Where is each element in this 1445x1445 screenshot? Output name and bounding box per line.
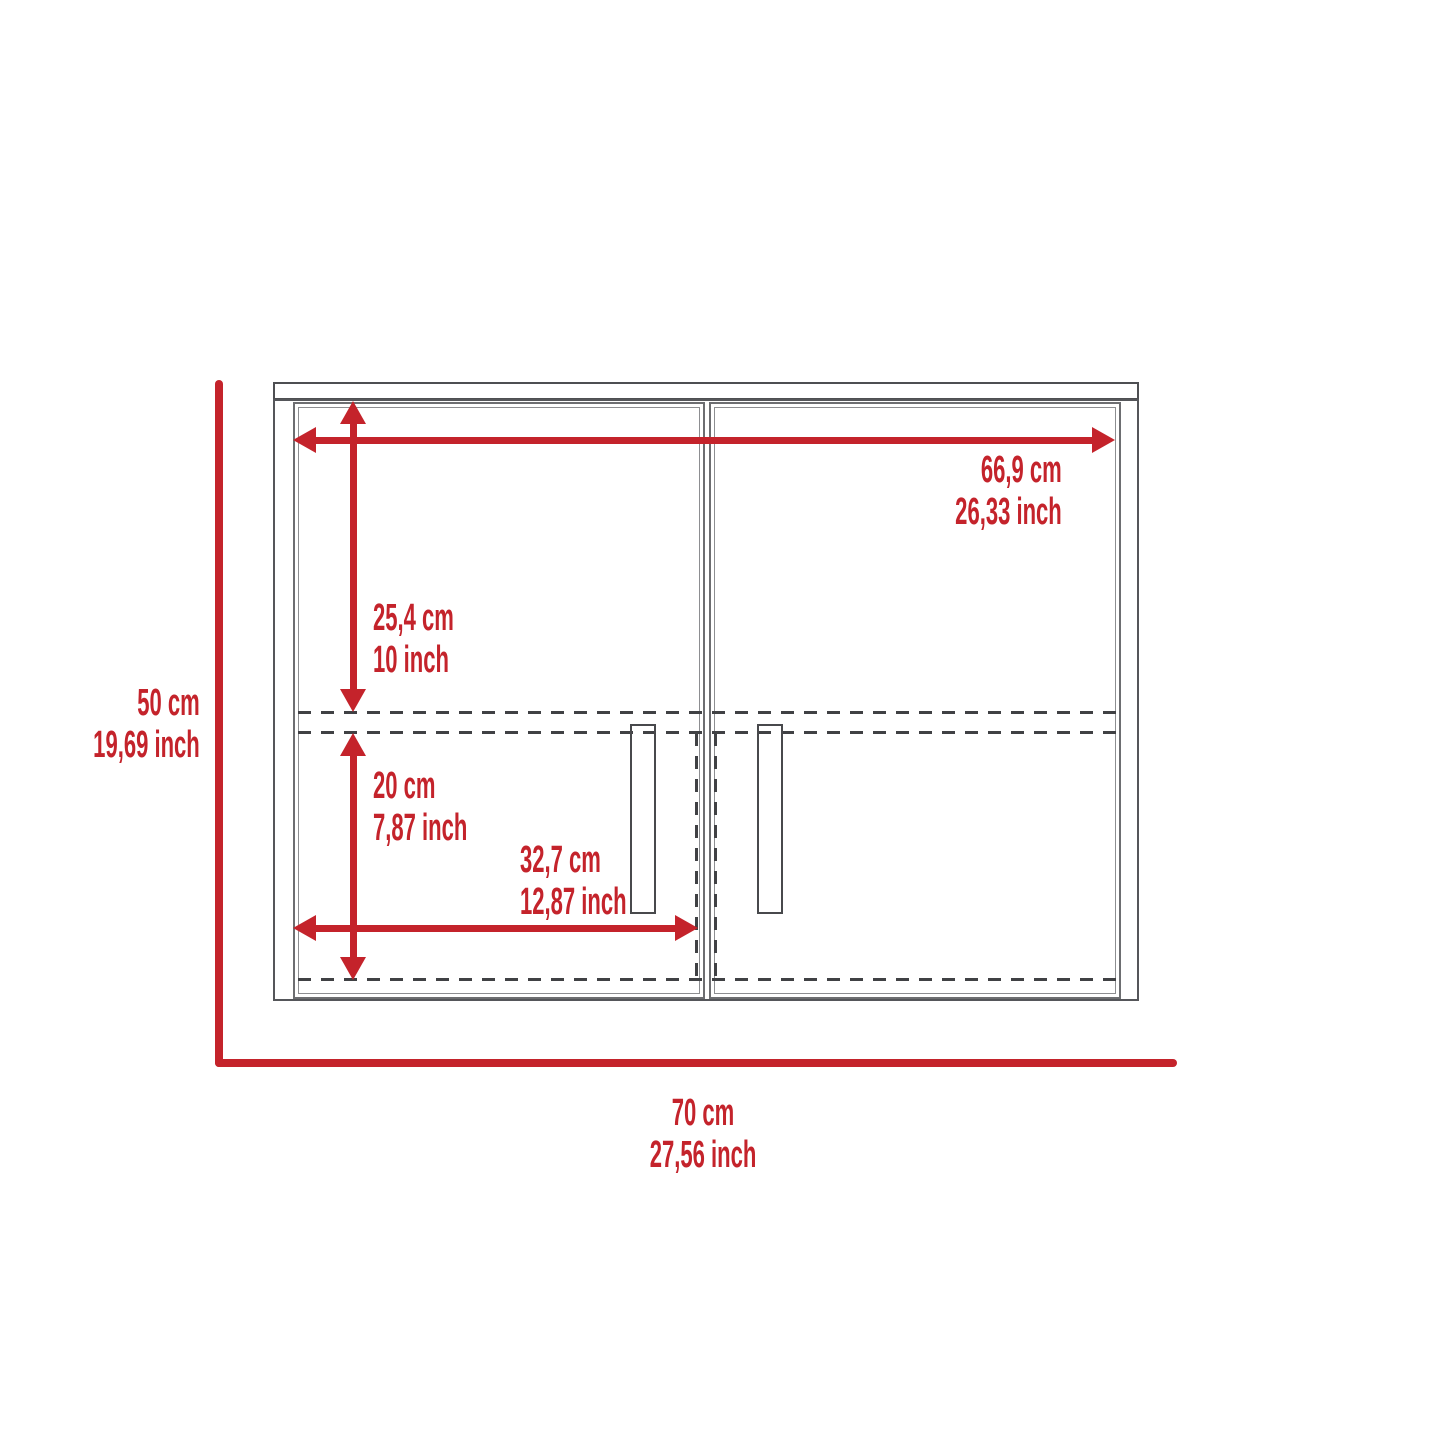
upper-section-height-inch: 10 inch	[373, 639, 454, 681]
arrowhead-left-icon	[293, 427, 316, 453]
cabinet-top-panel	[273, 382, 1139, 400]
left-door-handle	[630, 724, 656, 914]
door-width-label: 32,7 cm 12,87 inch	[520, 839, 627, 923]
dimension-diagram: 66,9 cm 26,33 inch 25,4 cm 10 inch 50 cm…	[0, 0, 1445, 1445]
interior-width-cm: 66,9 cm	[955, 449, 1062, 491]
center-dashed-line-left	[695, 733, 698, 980]
overall-height-label: 50 cm 19,69 inch	[93, 682, 200, 766]
arrowhead-up-icon	[340, 401, 366, 424]
lower-section-height-cm: 20 cm	[373, 765, 467, 807]
arrowhead-up-icon	[340, 733, 366, 756]
lower-section-height-label: 20 cm 7,87 inch	[373, 765, 467, 849]
bottom-dashed-line	[298, 978, 1116, 981]
arrowhead-right-icon	[675, 915, 698, 941]
overall-width-cm: 70 cm	[616, 1092, 790, 1134]
arrowhead-left-icon	[293, 915, 316, 941]
arrowhead-down-icon	[340, 689, 366, 712]
shelf-dashed-line-lower	[298, 731, 1116, 734]
overall-width-axis-line	[215, 1059, 1177, 1067]
door-width-cm: 32,7 cm	[520, 839, 627, 881]
center-dashed-line-right	[714, 733, 717, 980]
overall-height-inch: 19,69 inch	[93, 724, 200, 766]
interior-width-label: 66,9 cm 26,33 inch	[955, 449, 1062, 533]
interior-width-inch: 26,33 inch	[955, 491, 1062, 533]
overall-width-label: 70 cm 27,56 inch	[616, 1092, 790, 1176]
overall-height-axis-line	[215, 380, 223, 1067]
upper-section-height-cm: 25,4 cm	[373, 597, 454, 639]
arrowhead-right-icon	[1092, 427, 1115, 453]
arrowhead-down-icon	[340, 957, 366, 980]
right-door-handle	[757, 724, 783, 914]
lower-section-height-inch: 7,87 inch	[373, 807, 467, 849]
overall-height-cm: 50 cm	[93, 682, 200, 724]
overall-width-inch: 27,56 inch	[616, 1134, 790, 1176]
shelf-dashed-line-upper	[298, 711, 1116, 714]
door-width-inch: 12,87 inch	[520, 881, 627, 923]
upper-section-height-label: 25,4 cm 10 inch	[373, 597, 454, 681]
